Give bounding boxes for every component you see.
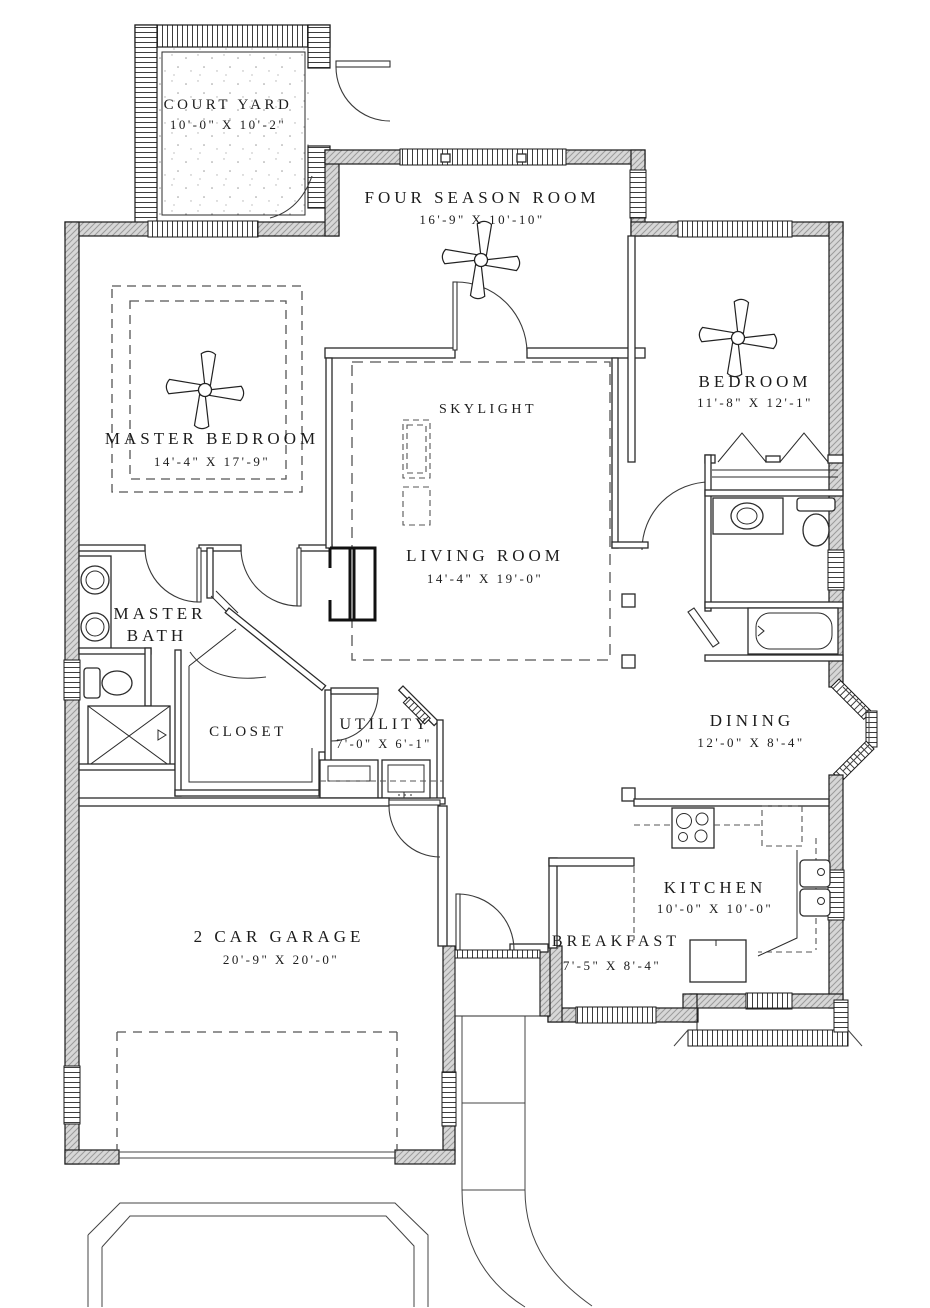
courtyard-wall-left — [135, 25, 157, 230]
kitchen-sink — [800, 889, 830, 916]
room-label-master-bath-1: MASTER — [114, 604, 207, 623]
wall-hall-bottom — [612, 542, 648, 548]
kitchen-sink — [800, 860, 830, 887]
wall-entry-left — [443, 946, 455, 1072]
wall-utility-left — [325, 690, 331, 764]
window-left-bath — [64, 660, 80, 700]
window-bedroom-top — [678, 221, 792, 237]
wall-breakfast-top — [549, 858, 634, 866]
driveway-inner — [102, 1216, 414, 1307]
patio-slab — [697, 1008, 835, 1030]
master-bedroom: MASTER BEDROOM 14'-4" X 17'-9" — [79, 286, 332, 606]
garage-door-arc — [389, 806, 440, 857]
toilet-tank — [84, 668, 100, 698]
column-post — [622, 788, 635, 801]
stoop-step — [455, 950, 540, 958]
window-entry-left — [442, 1072, 456, 1126]
garage-door-leaf — [389, 800, 440, 805]
fsr-door-arc — [455, 282, 527, 352]
room-label-living: LIVING ROOM — [406, 546, 564, 565]
bay-window-center — [866, 711, 877, 747]
utility: UTILITY 7'-0" X 6'-1" — [318, 686, 445, 804]
entry — [438, 806, 592, 1307]
skylight-lower — [403, 487, 430, 525]
dining: DINING 12'-0" X 8'-4" — [697, 711, 804, 750]
courtyard-gate-arc — [336, 67, 390, 121]
toilet-bowl — [102, 671, 132, 695]
master-bath-door-leaf — [197, 548, 201, 602]
room-label-dining: DINING — [710, 711, 794, 730]
refrigerator — [762, 806, 802, 846]
label-skylight: SKYLIGHT — [439, 402, 537, 417]
wall-closet-bottom — [175, 790, 325, 796]
wall-entry-hall-left — [438, 806, 447, 946]
closet-jamb-right — [828, 455, 843, 463]
front-door-leaf — [456, 894, 460, 950]
wall-fsr-bottom-right — [527, 348, 645, 358]
kitchen-island — [690, 940, 746, 982]
wall-mb-bottom-b — [199, 545, 241, 551]
bedroom-door-arc — [642, 482, 710, 550]
wall-toilet-top — [79, 648, 151, 654]
room-dims-court-yard: 10'-0" X 10'-2" — [170, 117, 286, 132]
wall-garage-bottom-right — [395, 1150, 455, 1164]
wall-garage-bottom-left — [65, 1150, 119, 1164]
window-right-tub — [828, 550, 844, 590]
room-dims-utility: 7'-0" X 6'-1" — [336, 737, 432, 751]
fsr-door-leaf — [453, 282, 457, 350]
wall-bath-top — [705, 490, 843, 496]
floor-plan-canvas: COURT YARD 10'-0" X 10'-2" — [0, 0, 930, 1308]
tub-room-door-leaf — [688, 608, 719, 647]
courtyard: COURT YARD 10'-0" X 10'-2" — [135, 25, 390, 230]
wall-mb-bottom-a — [79, 545, 145, 551]
wall-shower-bottom — [79, 764, 175, 770]
bath-sink — [731, 503, 763, 529]
toilet-tank — [797, 498, 835, 511]
master-hall-door-arc — [241, 548, 299, 606]
hall-bath — [688, 455, 843, 661]
room-label-four-season: FOUR SEASON ROOM — [365, 188, 600, 207]
fireplace-niche — [330, 548, 375, 620]
ceiling-fan — [164, 349, 245, 430]
room-dims-four-season: 16'-9" X 10'-10" — [419, 212, 544, 227]
window-mullion — [517, 154, 526, 162]
garage: 2 CAR GARAGE 20'-9" X 20'-0" — [79, 798, 440, 1307]
room-label-closet: CLOSET — [209, 724, 287, 740]
room-label-breakfast: BREAKFAST — [552, 933, 680, 950]
room-label-master-bedroom: MASTER BEDROOM — [105, 429, 319, 448]
master-hall-door-leaf — [297, 548, 301, 606]
room-label-utility: UTILITY — [339, 716, 430, 733]
stove — [672, 808, 714, 848]
window-fsr-top — [400, 149, 566, 165]
room-label-master-bath-2: BATH — [127, 626, 187, 645]
living-room: SKYLIGHT LIVING ROOM 14'-4" X 19'-0" — [326, 358, 648, 801]
courtyard-wall-right-upper — [308, 25, 330, 68]
kitchen: KITCHEN 10'-0" X 10'-0" — [634, 799, 830, 982]
wall-tub-top — [705, 602, 843, 608]
wall-utility-top — [331, 688, 378, 694]
wall-bath-bottom — [705, 655, 843, 661]
floor-plan-sheet: COURT YARD 10'-0" X 10'-2" — [0, 0, 930, 1308]
ceiling-fan — [697, 297, 778, 378]
garage-door-threshold — [119, 1152, 395, 1158]
room-label-garage: 2 CAR GARAGE — [194, 927, 365, 946]
room-label-kitchen: KITCHEN — [664, 878, 767, 897]
skylight-inner — [407, 425, 426, 473]
wall-closet-left — [175, 650, 181, 796]
patio-edge-right — [834, 1000, 848, 1032]
courtyard-floor — [157, 47, 310, 218]
front-door-arc — [458, 894, 514, 950]
closet-shelf-lines — [712, 470, 838, 477]
column-post — [622, 594, 635, 607]
garage-door-opening-dash — [117, 1032, 397, 1150]
wall-living-right — [612, 358, 618, 548]
driveway-outer — [88, 1203, 428, 1307]
room-dims-kitchen: 10'-0" X 10'-0" — [657, 901, 773, 916]
room-dims-living: 14'-4" X 19'-0" — [427, 571, 543, 586]
wall-stoop-right — [540, 946, 550, 1016]
toilet-bowl — [803, 514, 829, 546]
window-master-top — [148, 221, 258, 237]
four-season-room: FOUR SEASON ROOM 16'-9" X 10'-10" — [325, 188, 645, 358]
wall-bath-left — [705, 455, 711, 611]
bay-window-upper — [831, 679, 871, 719]
wall-toilet-right — [145, 648, 151, 706]
courtyard-gate-leaf — [336, 61, 390, 67]
closet-jamb-center — [766, 456, 780, 462]
wall-garage-top — [79, 798, 389, 806]
wall-utility-right — [437, 720, 443, 800]
courtyard-wall-top — [135, 25, 330, 47]
window-kitchen-bottom — [746, 993, 792, 1009]
patio-edge-bottom — [688, 1030, 848, 1046]
wall-kitchen-top — [634, 799, 829, 806]
room-dims-breakfast: 7'-5" X 8'-4" — [563, 958, 661, 973]
window-breakfast-bottom — [576, 1007, 656, 1023]
wall-mbath-right — [207, 548, 213, 598]
wall-entry-left-lower — [443, 1126, 455, 1152]
column-post — [622, 655, 635, 668]
room-label-bedroom: BEDROOM — [698, 372, 811, 391]
room-label-court-yard: COURT YARD — [164, 97, 293, 113]
vanity-sink — [81, 566, 109, 594]
window-left-garage — [64, 1066, 80, 1124]
wall-bedroom-left — [628, 236, 635, 462]
wall-fsr-bottom-left — [325, 348, 455, 358]
vanity-sink — [81, 613, 109, 641]
wall-living-left — [326, 358, 332, 548]
window-mullion — [441, 154, 450, 162]
walkway-curve — [462, 1190, 592, 1307]
stoop — [455, 950, 540, 1016]
room-dims-dining: 12'-0" X 8'-4" — [697, 735, 804, 750]
room-dims-bedroom: 11'-8" X 12'-1" — [697, 395, 813, 410]
room-dims-garage: 20'-9" X 20'-0" — [223, 952, 339, 967]
window-fsr-right — [630, 170, 646, 218]
closet-inner-outline — [189, 629, 312, 782]
room-dims-master-bedroom: 14'-4" X 17'-9" — [154, 454, 270, 469]
master-bath-door-arc — [145, 548, 199, 602]
walkway-straight — [462, 1016, 525, 1190]
master-closet: CLOSET — [175, 608, 326, 796]
